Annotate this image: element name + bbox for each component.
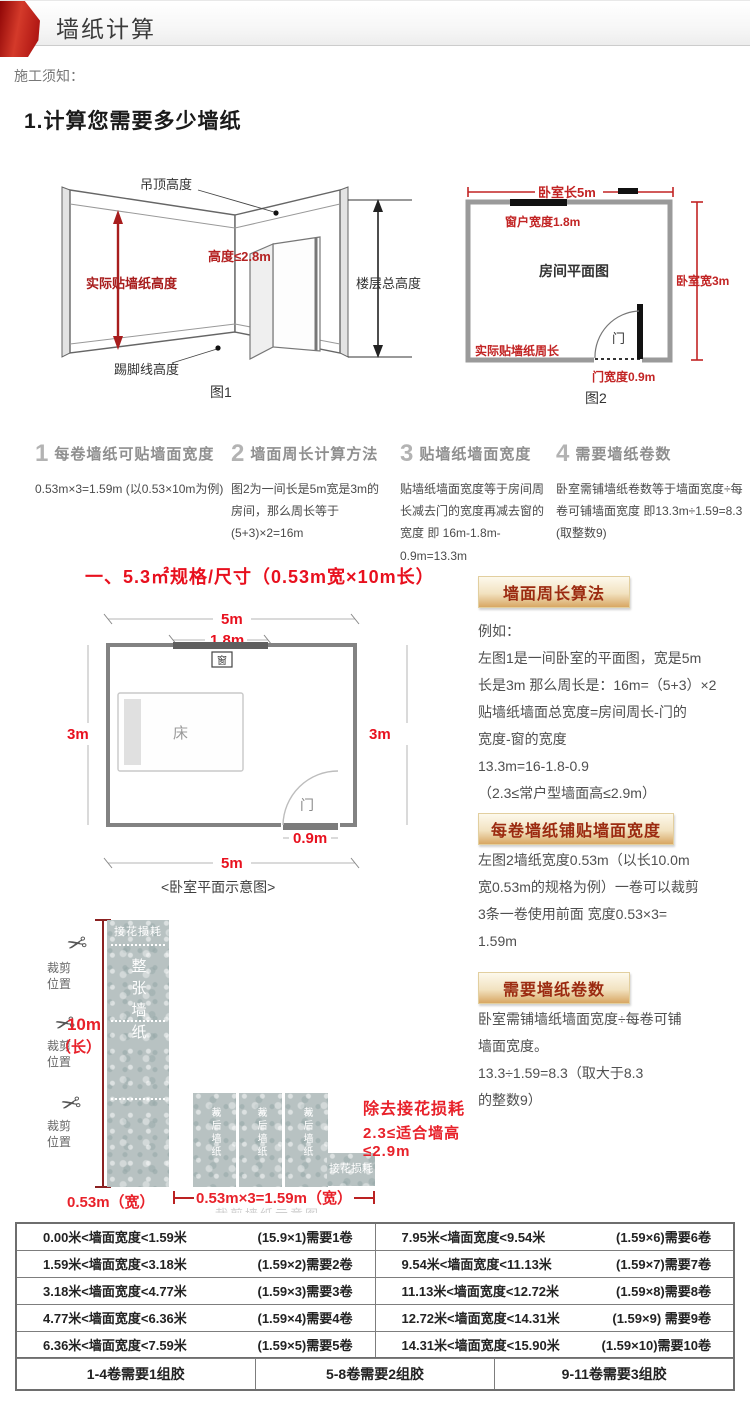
- plan-bottom-5m: 5m: [221, 855, 243, 872]
- cut-strip: 裁后墙纸: [285, 1093, 328, 1187]
- text-line: （2.3≤常户型墙面高≤2.9m）: [478, 780, 748, 807]
- cut-position-label: 裁剪位置: [47, 1118, 77, 1150]
- room-plan-label: 房间平面图: [539, 263, 609, 279]
- cut-strip: 裁后墙纸: [193, 1093, 236, 1187]
- cutting-diagram: ✂ 裁剪位置 ✂ 裁剪位置 ✂ 裁剪位置 10m （长） 接花损耗 整张墙纸 0…: [25, 905, 475, 1217]
- formula-cell: (1.59×5)需要5卷: [257, 1335, 352, 1354]
- plan-top-5m: 5m: [221, 611, 243, 628]
- step-body: 卧室需铺墙纸卷数等于墙面宽度÷每卷可铺墙面宽度 即13.3m÷1.59=8.3 …: [556, 478, 744, 545]
- cut-position-label: 裁剪位置: [47, 960, 77, 992]
- pattern-waste-label: 接花损耗: [107, 923, 169, 939]
- ceiling-leader: [198, 190, 274, 212]
- range-cell: 7.95米<墙面宽度<9.54米: [402, 1227, 546, 1246]
- cut-strip-label: 裁后墙纸: [253, 1107, 268, 1159]
- range-cell: 14.31米<墙面宽度<15.90米: [402, 1335, 560, 1354]
- range-cell: 0.00米<墙面宽度<1.59米: [43, 1227, 187, 1246]
- range-cell: 4.77米<墙面宽度<6.36米: [43, 1308, 187, 1327]
- window-bar: [510, 199, 567, 206]
- window-char: 窗: [217, 654, 227, 667]
- text-line: 长是3m 那么周长是：16m=（5+3）×2: [478, 672, 748, 699]
- text-line: 墙面宽度。: [478, 1033, 748, 1060]
- dim-black-bar: [618, 188, 638, 194]
- pillow: [124, 699, 141, 765]
- range-cell: 1.59米<墙面宽度<3.18米: [43, 1254, 187, 1273]
- text-line: 宽0.53m的规格为例）一卷可以裁剪: [478, 874, 748, 901]
- badge-roll-width: 每卷墙纸铺贴墙面宽度: [478, 813, 674, 845]
- roll-count-table: 0.00米<墙面宽度<1.59米(15.9×1)需要1卷 7.95米<墙面宽度<…: [15, 1222, 735, 1359]
- plan-door-leaf: [283, 823, 338, 830]
- page: 墙纸计算 施工须知： 1.计算您需要多少墙纸 吊顶高度 高度≤2.8m 实际贴墙…: [0, 0, 750, 1412]
- height-limit-label: 高度≤2.8m: [208, 249, 271, 264]
- bedroom-length-label: 卧室长5m: [538, 185, 596, 200]
- baseboard-leader: [172, 349, 217, 363]
- figure1-caption: 图1: [210, 384, 232, 400]
- spec-title: 一、5.3㎡规格/尺寸（0.53m宽×10m长）: [85, 563, 435, 589]
- left-wall: [70, 190, 235, 353]
- text-line: 宽度-窗的宽度: [478, 726, 748, 753]
- door-leaf: [637, 304, 643, 359]
- text-line: 卧室需铺墙纸墙面宽度÷每卷可铺: [478, 1006, 748, 1033]
- right-wall-edge: [340, 187, 348, 357]
- baseboard-height-label: 踢脚线高度: [114, 362, 179, 377]
- formula-cell: (1.59×6)需要6卷: [616, 1227, 711, 1246]
- table-row: 0.00米<墙面宽度<1.59米(15.9×1)需要1卷 7.95米<墙面宽度<…: [16, 1223, 734, 1250]
- text-line: 13.3m=16-1.8-0.9: [478, 753, 748, 780]
- ceiling-height-label: 吊顶高度: [140, 177, 192, 192]
- left-wall-edge: [62, 187, 70, 357]
- roll-count-text: 卧室需铺墙纸墙面宽度÷每卷可铺 墙面宽度。 13.3÷1.59=8.3（取大于8…: [478, 1006, 748, 1114]
- step-title: 贴墙纸墙面宽度: [419, 446, 531, 463]
- formula-cell: (1.59×4)需要4卷: [257, 1308, 352, 1327]
- step-body: 图2为一间长是5m宽是3m的房间，那么周长等于 (5+3)×2=16m: [231, 478, 389, 545]
- formula-cell: (1.59×2)需要2卷: [257, 1254, 352, 1273]
- formula-cell: (1.59×8)需要8卷: [616, 1281, 711, 1300]
- dim-tick: [373, 1191, 375, 1204]
- door-opening: [273, 237, 320, 351]
- cut-line: [111, 944, 165, 946]
- full-roll-strip: 接花损耗 整张墙纸: [107, 920, 169, 1187]
- plan-right-3m: 3m: [369, 726, 391, 743]
- cut-strip-label: 裁后墙纸: [207, 1107, 222, 1159]
- table-row: 6.36米<墙面宽度<7.59米(1.59×5)需要5卷 14.31米<墙面宽度…: [16, 1331, 734, 1358]
- window-width-label: 窗户宽度1.8m: [505, 214, 580, 229]
- formula-cell: (1.59×10)需要10卷: [602, 1335, 711, 1354]
- text-line: 例如：: [478, 618, 748, 645]
- range-cell: 12.72米<墙面宽度<14.31米: [402, 1308, 560, 1327]
- plan-left-3m: 3m: [67, 726, 89, 743]
- range-cell: 11.13米<墙面宽度<12.72米: [402, 1281, 560, 1300]
- range-cell: 3.18米<墙面宽度<4.77米: [43, 1281, 187, 1300]
- table-row: 1.59米<墙面宽度<3.18米(1.59×2)需要2卷 9.54米<墙面宽度<…: [16, 1250, 734, 1277]
- full-roll-label: 整张墙纸: [128, 958, 149, 1046]
- glue-footer-table: 1-4卷需要1组胶 5-8卷需要2组胶 9-11卷需要3组胶: [15, 1358, 735, 1391]
- text-line: 13.3÷1.59=8.3（取大于8.3: [478, 1060, 748, 1087]
- arrow-up-icon: [373, 199, 383, 212]
- scissors-icon: ✂: [58, 1088, 84, 1121]
- red-ribbon-icon: [0, 1, 40, 57]
- step-title: 需要墙纸卷数: [575, 446, 671, 463]
- badge-roll-count: 需要墙纸卷数: [478, 972, 630, 1004]
- table-row: 4.77米<墙面宽度<6.36米(1.59×4)需要4卷 12.72米<墙面宽度…: [16, 1304, 734, 1331]
- figure2-floor-plan: 卧室长5m 窗户宽度1.8m 房间平面图 卧室宽3m 实际贴墙纸周长 门 门宽度…: [455, 163, 750, 408]
- step-number: 2: [231, 440, 244, 467]
- length-measure-line: [102, 919, 104, 1187]
- scissors-icon: ✂: [64, 928, 90, 961]
- cut-line: [111, 1020, 165, 1022]
- figure1-room-3d: 吊顶高度 高度≤2.8m 实际贴墙纸高度 楼层总高度 踢脚线高度 图1: [30, 160, 450, 405]
- floor-height-label: 楼层总高度: [356, 276, 421, 291]
- badge-perimeter-method: 墙面周长算法: [478, 576, 630, 608]
- text-line: 的整数9）: [478, 1087, 748, 1114]
- header-bar: 墙纸计算: [0, 0, 750, 46]
- glue-cell: 1-4卷需要1组胶: [16, 1359, 255, 1390]
- door-width-label: 门宽度0.9m: [592, 369, 655, 384]
- section-heading: 1.计算您需要多少墙纸: [24, 105, 242, 135]
- perimeter-method-text: 例如： 左图1是一间卧室的平面图，宽是5m 长是3m 那么周长是：16m=（5+…: [478, 618, 748, 807]
- step-title: 每卷墙纸可贴墙面宽度: [54, 446, 214, 463]
- length-unit-label: （长）: [51, 1036, 101, 1057]
- bedroom-plan: 5m 1.8m 窗 床 3m 3m 门 0.9m 5m <卧室平面示意图>: [55, 605, 465, 897]
- plan-caption: <卧室平面示意图>: [161, 879, 275, 895]
- dim-line: [175, 1197, 194, 1199]
- door-label: 门: [612, 331, 625, 346]
- table-footer-row: 1-4卷需要1组胶 5-8卷需要2组胶 9-11卷需要3组胶: [16, 1359, 734, 1390]
- plan-window-bar: [173, 642, 268, 649]
- dim-line: [354, 1197, 373, 1199]
- table-row: 3.18米<墙面宽度<4.77米(1.59×3)需要3卷 11.13米<墙面宽度…: [16, 1277, 734, 1304]
- waste-piece-label: 接花损耗: [329, 1163, 373, 1175]
- step-1: 1每卷墙纸可贴墙面宽度 0.53m×3=1.59m (以0.53×10m为例): [35, 440, 225, 500]
- glue-cell: 5-8卷需要2组胶: [255, 1359, 495, 1390]
- step-number: 4: [556, 440, 569, 467]
- page-title: 墙纸计算: [56, 10, 156, 44]
- text-line: 3条一卷使用前面 宽度0.53×3=: [478, 901, 748, 928]
- step-4: 4需要墙纸卷数 卧室需铺墙纸卷数等于墙面宽度÷每卷可铺墙面宽度 即13.3m÷1…: [556, 440, 744, 545]
- step-3: 3贴墙纸墙面宽度 贴墙纸墙面宽度等于房间周长减去门的宽度再减去窗的宽度 即 16…: [400, 440, 548, 567]
- formula-cell: (1.59×7)需要7卷: [616, 1254, 711, 1273]
- text-line: 贴墙纸墙面总宽度=房间周长-门的: [478, 699, 748, 726]
- formula-cell: (1.59×9) 需要9卷: [612, 1308, 711, 1327]
- formula-cell: (1.59×3)需要3卷: [257, 1281, 352, 1300]
- cut-line: [111, 1098, 165, 1100]
- perimeter-label: 实际贴墙纸周长: [475, 343, 560, 358]
- bedroom-width-label: 卧室宽3m: [676, 273, 729, 288]
- text-line: 1.59m: [478, 928, 748, 955]
- step-body: 贴墙纸墙面宽度等于房间周长减去门的宽度再减去窗的宽度 即 16m-1.8m-0.…: [400, 478, 548, 567]
- paste-height-label: 实际贴墙纸高度: [86, 276, 178, 291]
- plan-door-09m: 0.9m: [293, 830, 327, 847]
- formula-cell: (15.9×1)需要1卷: [257, 1227, 352, 1246]
- cut-strip: 裁后墙纸: [239, 1093, 282, 1187]
- step-title: 墙面周长计算方法: [250, 446, 378, 463]
- step-number: 1: [35, 440, 48, 467]
- text-line: 左图2墙纸宽度0.53m（以长10.0m: [478, 847, 748, 874]
- wall-height-note: 2.3≤适合墙高≤2.9m: [363, 1122, 475, 1160]
- ceiling-dot: [273, 210, 278, 215]
- length-10m-label: 10m: [59, 1015, 101, 1035]
- step-body: 0.53m×3=1.59m (以0.53×10m为例): [35, 478, 225, 500]
- baseboard-dot: [215, 345, 220, 350]
- waste-note: 除去接花损耗: [363, 1095, 465, 1119]
- roll-width-text: 左图2墙纸宽度0.53m（以长10.0m 宽0.53m的规格为例）一卷可以裁剪 …: [478, 847, 748, 955]
- step-number: 3: [400, 440, 413, 467]
- construction-notice: 施工须知：: [14, 66, 84, 86]
- bed-label: 床: [173, 725, 188, 742]
- arrow-down-icon: [373, 345, 383, 358]
- range-cell: 6.36米<墙面宽度<7.59米: [43, 1335, 187, 1354]
- plan-door-label: 门: [300, 797, 314, 813]
- text-line: 左图1是一间卧室的平面图，宽是5m: [478, 645, 748, 672]
- cut-strip-label: 裁后墙纸: [299, 1107, 314, 1159]
- range-cell: 9.54米<墙面宽度<11.13米: [402, 1254, 552, 1273]
- clipped-caption: 栽剪墙纸示意图: [215, 1204, 375, 1213]
- figure2-caption: 图2: [585, 390, 607, 406]
- glue-cell: 9-11卷需要3组胶: [495, 1359, 734, 1390]
- step-2: 2墙面周长计算方法 图2为一间长是5m宽是3m的房间，那么周长等于 (5+3)×…: [231, 440, 389, 545]
